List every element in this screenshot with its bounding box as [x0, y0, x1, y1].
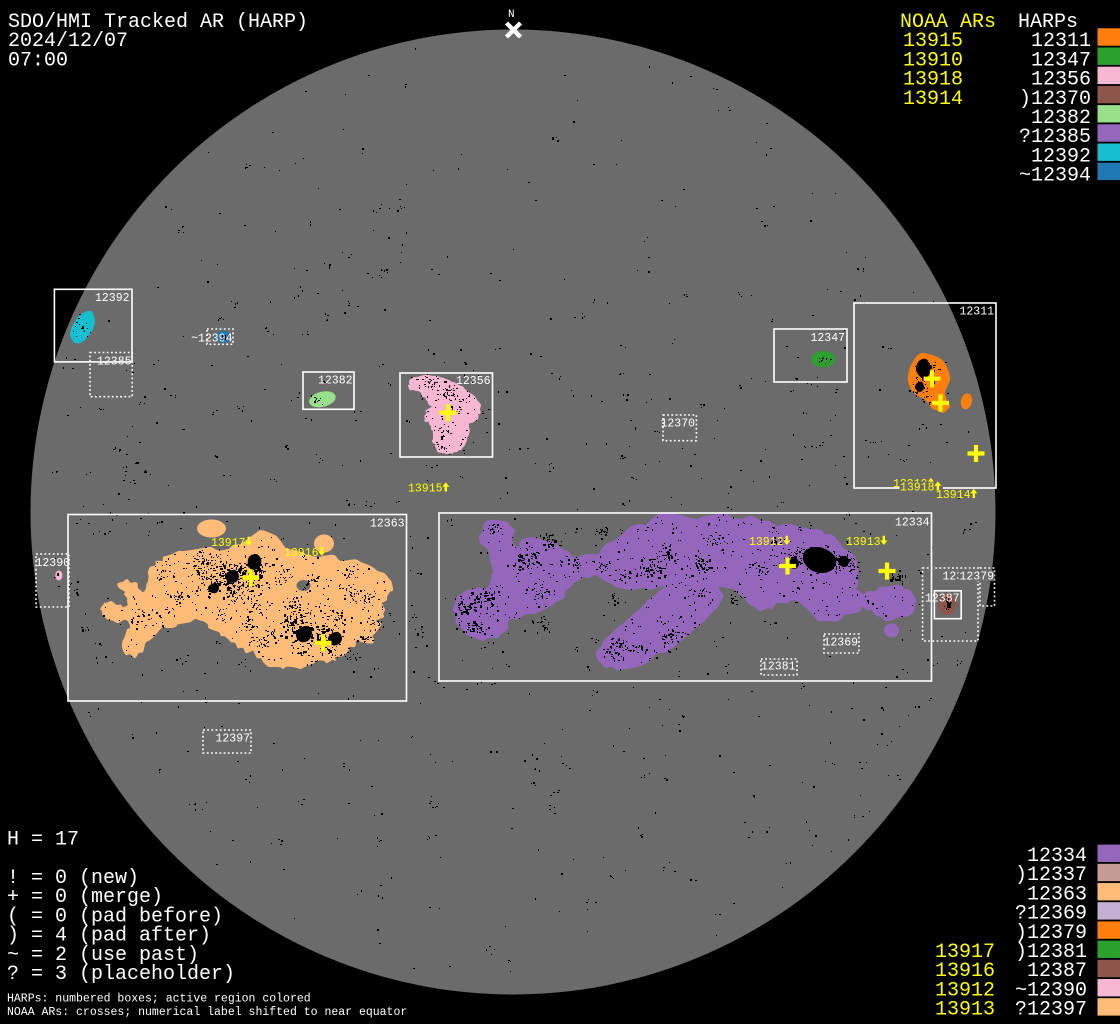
svg-text:12363: 12363: [370, 518, 405, 531]
svg-text:12397: 12397: [215, 733, 250, 746]
svg-text:12311: 12311: [959, 306, 994, 319]
svg-text:13917: 13917: [211, 537, 246, 550]
svg-text:NOAA ARs: crosses; numerical l: NOAA ARs: crosses; numerical label shift…: [7, 1006, 407, 1019]
svg-text:13914: 13914: [936, 489, 971, 502]
svg-text:H = 17: H = 17: [7, 829, 79, 852]
svg-text:~12394: ~12394: [191, 333, 233, 346]
svg-text:13912: 13912: [749, 536, 784, 549]
svg-text:12356: 12356: [456, 375, 491, 388]
svg-text:?12397: ?12397: [1015, 999, 1087, 1022]
svg-text:07:00: 07:00: [8, 49, 68, 72]
svg-text:12381: 12381: [761, 661, 796, 674]
svg-text:12347: 12347: [810, 332, 845, 345]
svg-text:13913: 13913: [846, 536, 881, 549]
svg-text:12390: 12390: [36, 557, 71, 570]
svg-text:13915: 13915: [408, 483, 443, 496]
svg-text:HARPs: numbered boxes; active: HARPs: numbered boxes; active region col…: [7, 993, 311, 1006]
svg-text:13913: 13913: [935, 999, 995, 1022]
svg-text:12370: 12370: [660, 418, 695, 431]
svg-text:13914: 13914: [903, 88, 963, 111]
svg-text:12369: 12369: [823, 637, 858, 650]
svg-text:13918: 13918: [900, 482, 935, 495]
svg-text:12387: 12387: [925, 593, 960, 606]
svg-text:12385: 12385: [97, 356, 132, 369]
svg-text:13916: 13916: [284, 547, 319, 560]
svg-text:~12394: ~12394: [1019, 165, 1091, 188]
svg-text:N: N: [508, 9, 515, 21]
svg-text:12392: 12392: [95, 292, 130, 305]
svg-text:? = 3 (placeholder): ? = 3 (placeholder): [7, 963, 235, 986]
svg-text:12334: 12334: [895, 517, 930, 530]
svg-text:12382: 12382: [318, 375, 353, 388]
svg-text:12379: 12379: [959, 571, 994, 584]
